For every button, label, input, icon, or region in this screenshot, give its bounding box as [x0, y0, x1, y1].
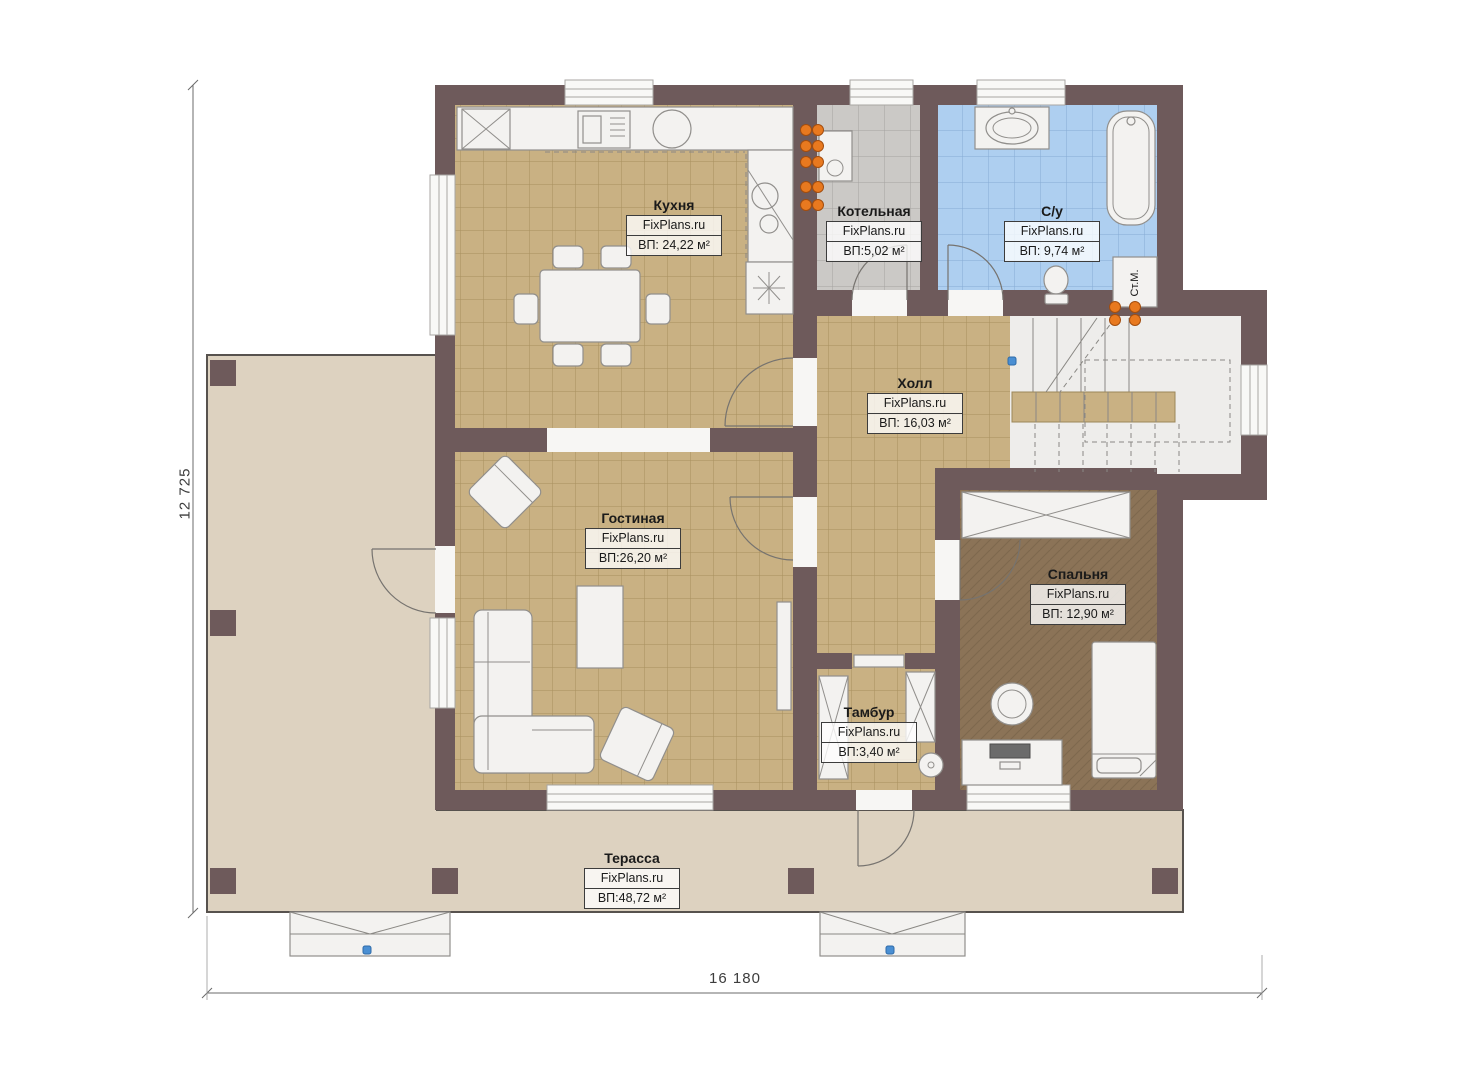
room-label-boiler: Котельная FixPlans.ru ВП:5,02 м²: [826, 203, 922, 262]
room-area: ВП:3,40 м²: [822, 742, 916, 762]
door-hall-vestibule-leaf: [854, 655, 904, 667]
room-name: Кухня: [626, 197, 722, 213]
level-marker: [363, 946, 371, 954]
tv-on-dresser: [990, 744, 1030, 758]
level-marker: [1008, 357, 1016, 365]
floor-drain: [919, 753, 943, 777]
toilet-tank: [1045, 294, 1068, 304]
entry-steps-left: [290, 912, 450, 956]
room-site: FixPlans.ru: [822, 723, 916, 742]
door-boiler-opening: [852, 290, 907, 316]
wall-kitchen-living-b: [710, 428, 817, 452]
window-boiler-top: [850, 80, 913, 105]
terrace-post: [788, 868, 814, 894]
wall-stairbay-bottom: [1157, 474, 1267, 500]
wall-vestibule-top-a: [817, 653, 852, 669]
room-site: FixPlans.ru: [585, 869, 679, 888]
dining-chair: [514, 294, 538, 324]
room-info-box: FixPlans.ru ВП: 9,74 м²: [1004, 221, 1100, 262]
terrace-post: [210, 610, 236, 636]
floor-plan-page: Кухня FixPlans.ru ВП: 24,22 м² Котельная…: [0, 0, 1474, 1080]
room-info-box: FixPlans.ru ВП:3,40 м²: [821, 722, 917, 763]
room-area: ВП:5,02 м²: [827, 241, 921, 261]
radiator-dot: [813, 182, 824, 193]
room-site: FixPlans.ru: [586, 529, 680, 548]
radiator-dot: [813, 125, 824, 136]
wall-exterior-right-upper: [1157, 105, 1183, 316]
wall-hall-north-b: [907, 290, 948, 316]
window-bathroom-top: [977, 80, 1065, 105]
wall-living-hall-lower: [793, 567, 817, 790]
passage-kitchen-living: [547, 428, 710, 452]
room-name: Холл: [867, 375, 963, 391]
terrace-post: [1152, 868, 1178, 894]
radiator-dot: [801, 125, 812, 136]
room-name: Гостиная: [585, 510, 681, 526]
radiator-dot: [1110, 315, 1121, 326]
sofa-horizontal: [474, 716, 594, 773]
level-marker: [886, 946, 894, 954]
room-area: ВП:26,20 м²: [586, 548, 680, 568]
room-area: ВП: 9,74 м²: [1005, 241, 1099, 261]
terrace-post: [210, 360, 236, 386]
boiler-room-equipment: [819, 131, 852, 181]
boiler-unit: [819, 131, 852, 181]
room-info-box: FixPlans.ru ВП: 24,22 м²: [626, 215, 722, 256]
door-living-terrace-opening: [435, 546, 455, 613]
room-site: FixPlans.ru: [827, 222, 921, 241]
entry-steps-center: [820, 912, 965, 956]
washing-machine-label: Ст.М.: [1113, 261, 1157, 305]
radiator-dot: [813, 157, 824, 168]
hall-floor: [817, 468, 935, 669]
room-info-box: FixPlans.ru ВП:5,02 м²: [826, 221, 922, 262]
room-name: Терасса: [584, 850, 680, 866]
dining-chair: [601, 344, 631, 366]
wall-hall-bedroom-upper: [935, 468, 960, 540]
dining-table: [540, 270, 640, 342]
window-bedroom-bottom: [967, 785, 1070, 810]
radiator-dot: [1130, 315, 1141, 326]
dining-chair: [553, 344, 583, 366]
radiator-dot: [801, 200, 812, 211]
room-area: ВП: 16,03 м²: [868, 413, 962, 433]
bed-pillow: [1097, 758, 1141, 773]
room-area: ВП: 24,22 м²: [627, 235, 721, 255]
wall-hall-north-a: [817, 290, 852, 316]
radiator-dot: [801, 141, 812, 152]
door-bathroom-opening: [948, 290, 1003, 316]
bedroom-plant-pot: [991, 683, 1033, 725]
wall-exterior-top: [435, 85, 1183, 105]
room-label-bathroom: С/у FixPlans.ru ВП: 9,74 м²: [1004, 203, 1100, 262]
floor-plan-drawing: [0, 0, 1474, 1080]
radiator-dot: [813, 141, 824, 152]
door-bedroom-opening: [935, 540, 960, 600]
room-name: Тамбур: [821, 704, 917, 720]
dining-chair: [553, 246, 583, 268]
room-site: FixPlans.ru: [1031, 585, 1125, 604]
room-name: Спальня: [1030, 566, 1126, 582]
bathroom-sink: [986, 112, 1038, 144]
window-kitchen-left: [430, 175, 455, 335]
wall-boiler-bathroom: [920, 105, 938, 290]
room-site: FixPlans.ru: [1005, 222, 1099, 241]
wall-kitchen-living-a: [455, 428, 547, 452]
wall-exterior-right-lower: [1157, 474, 1183, 790]
room-site: FixPlans.ru: [627, 216, 721, 235]
kitchen-sink: [653, 110, 691, 148]
room-label-living: Гостиная FixPlans.ru ВП:26,20 м²: [585, 510, 681, 569]
door-living-hall-opening: [793, 497, 817, 567]
door-kitchen-hall-opening: [793, 358, 817, 426]
room-info-box: FixPlans.ru ВП: 16,03 м²: [867, 393, 963, 434]
window-living-bottom: [547, 785, 713, 810]
toilet: [1044, 266, 1068, 294]
radiator-dot: [801, 157, 812, 168]
room-area: ВП: 12,90 м²: [1031, 604, 1125, 624]
tv-unit: [777, 602, 791, 710]
room-area: ВП:48,72 м²: [585, 888, 679, 908]
bathtub: [1107, 111, 1155, 225]
room-label-terrace: Терасса FixPlans.ru ВП:48,72 м²: [584, 850, 680, 909]
window-kitchen-top: [565, 80, 653, 105]
coffee-table: [577, 586, 623, 668]
bathtub-faucet: [1127, 117, 1135, 125]
dresser-knobs: [1000, 762, 1020, 769]
terrace-post: [432, 868, 458, 894]
room-info-box: FixPlans.ru ВП:48,72 м²: [584, 868, 680, 909]
room-site: FixPlans.ru: [868, 394, 962, 413]
dimension-width: 16 180: [685, 970, 785, 987]
terrace-post: [210, 868, 236, 894]
corner-sink-bowl: [760, 215, 778, 233]
room-label-vestibule: Тамбур FixPlans.ru ВП:3,40 м²: [821, 704, 917, 763]
window-living-left: [430, 618, 455, 708]
dimension-height: 12 725: [177, 444, 194, 544]
room-info-box: FixPlans.ru ВП:26,20 м²: [585, 528, 681, 569]
window-stairbay-right: [1241, 365, 1267, 435]
wall-vestibule-top-b: [905, 653, 935, 669]
radiator-dot: [813, 200, 824, 211]
dining-chair: [646, 294, 670, 324]
door-vestibule-terrace-opening: [856, 790, 912, 810]
stove-door: [583, 116, 601, 143]
sink-faucet: [1009, 108, 1015, 114]
room-info-box: FixPlans.ru ВП: 12,90 м²: [1030, 584, 1126, 625]
room-label-kitchen: Кухня FixPlans.ru ВП: 24,22 м²: [626, 197, 722, 256]
radiator-dot: [801, 182, 812, 193]
room-name: С/у: [1004, 203, 1100, 219]
room-label-bedroom: Спальня FixPlans.ru ВП: 12,90 м²: [1030, 566, 1126, 625]
room-name: Котельная: [826, 203, 922, 219]
room-label-hall: Холл FixPlans.ru ВП: 16,03 м²: [867, 375, 963, 434]
wall-stairbay-right-upper: [1241, 316, 1267, 365]
